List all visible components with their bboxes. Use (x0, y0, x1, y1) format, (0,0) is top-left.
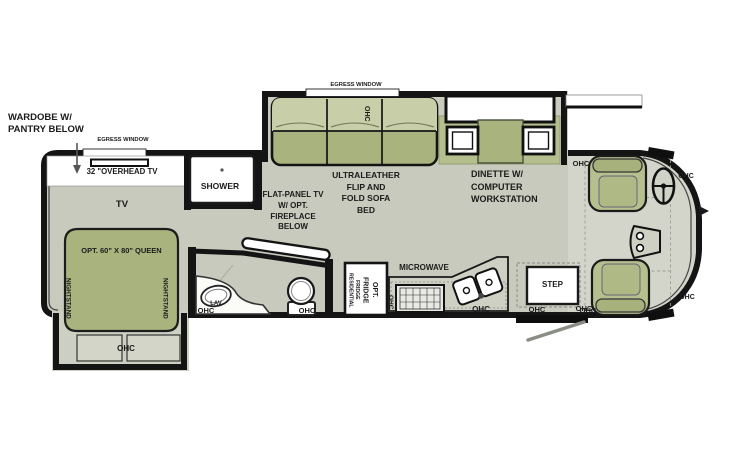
overhead-tv-bar (91, 160, 148, 167)
bath-ohc-left-label: OHC (190, 307, 222, 316)
residential-fridge-label: RESIDENTIAL FRIDGE (347, 266, 360, 314)
dinette-chair-right (523, 127, 554, 154)
cab-ohc-topleft-label: OHC (564, 160, 598, 169)
center-console-icon (631, 226, 661, 258)
egress-window-street (306, 89, 399, 97)
bath-ohc-right-label: OHC (291, 307, 323, 316)
rv-floorplan: WARDOBE W/ PANTRY BELOW EGRESS WINDOW EG… (0, 0, 731, 469)
cab-ohc-bottom-label: OHC (571, 307, 605, 316)
fridge-opt-label: FRIDGE OPT. (360, 265, 379, 315)
egress-window-rear-label: EGRESS WINDOW (84, 137, 162, 144)
dinette-table (478, 120, 523, 163)
overhead-tv-label: 32 "OVERHEAD TV (78, 168, 166, 177)
sofa-bed-label: ULTRALEATHER FLIP AND FOLD SOFA BED (323, 170, 409, 216)
dinette-label: DINETTE W/ COMPUTER WORKSTATION (471, 168, 561, 206)
sofa-ohc-label: OHC (362, 101, 370, 127)
queen-bed-label: OPT. 60" X 80" QUEEN (66, 247, 177, 256)
sofa-bed (272, 98, 437, 165)
cab-overhead-compartment (566, 95, 642, 107)
microwave-label: MICROWAVE (387, 263, 461, 272)
tv-label: TV (106, 200, 138, 211)
step-ohc-left-label: OHC (520, 306, 554, 315)
front-marker-icon (699, 206, 709, 216)
shower-stall (190, 156, 254, 203)
cab-ohc-bottomright-label: OHC (672, 294, 702, 302)
shower-label: SHOWER (189, 182, 251, 192)
fridge-ohc-label: OHC (387, 287, 394, 317)
nightstand-left-label: NIGHTSTAND (65, 261, 72, 335)
entry-door-swing (528, 322, 584, 340)
dinette-window (446, 96, 554, 122)
egress-window-rear (83, 149, 146, 157)
bed-ohc-label: OHC (101, 344, 151, 353)
nightstand-right-label: NIGHTSTAND (162, 261, 169, 335)
sink-ohc-label: OHC (464, 305, 498, 314)
cab-ohc-topright-label: OHC (671, 173, 701, 181)
wardrobe-callout-label: WARDOBE W/ PANTRY BELOW (8, 112, 128, 135)
dinette-chair-left (447, 127, 478, 154)
egress-window-street-label: EGRESS WINDOW (317, 82, 395, 89)
shower-drain-icon (220, 168, 223, 171)
entry-door-sill (516, 315, 588, 323)
step-label: STEP (527, 280, 578, 289)
stove-icon (396, 285, 444, 312)
floorplan-drawing (0, 0, 731, 469)
